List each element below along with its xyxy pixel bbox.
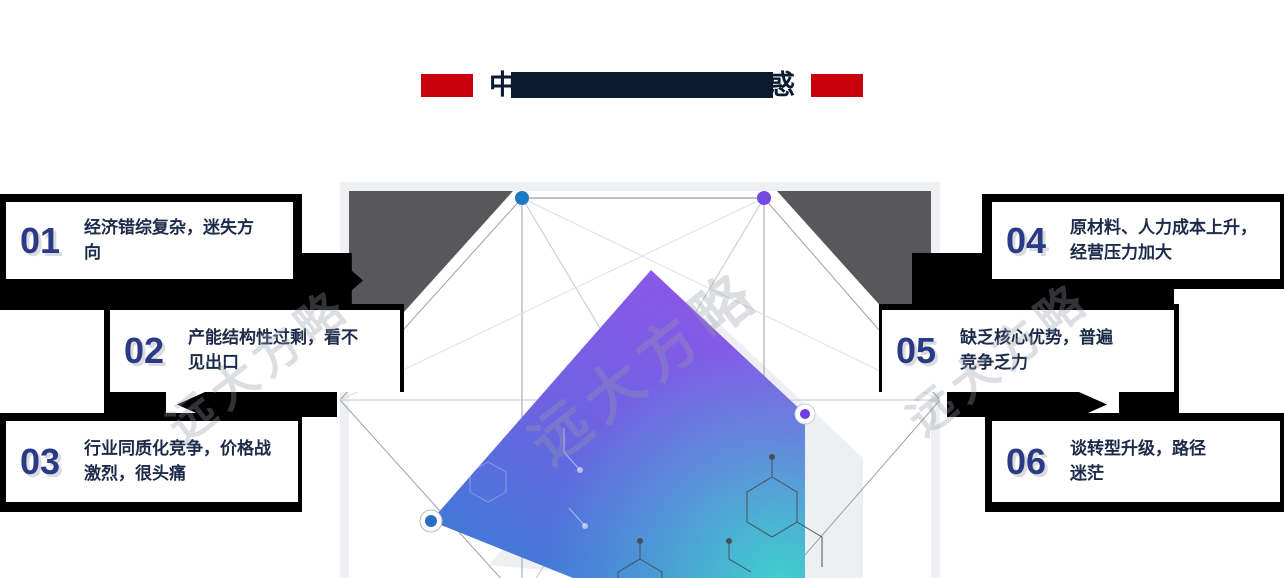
card-01-text: 经济错综复杂，迷失方向 [84, 216, 260, 265]
card-04-text: 原材料、人力成本上升，经营压力加大 [1070, 216, 1266, 265]
card-03: 03 行业同质化竞争，价格战激烈，很头痛 [6, 421, 298, 502]
blue-dot [515, 191, 529, 205]
card-04: 04 原材料、人力成本上升，经营压力加大 [992, 202, 1280, 279]
card-06: 06 谈转型升级，路径迷茫 [992, 421, 1280, 502]
card-03-text: 行业同质化竞争，价格战激烈，很头痛 [84, 437, 280, 486]
card-04-number: 04 [1006, 223, 1046, 259]
card-02-number: 02 [124, 333, 164, 369]
title-redacted-bar [511, 72, 773, 98]
title-accent-left [421, 74, 473, 97]
title-last-char: 惑 [768, 72, 795, 99]
card-01-number: 01 [20, 223, 60, 259]
purple-ring-dot [795, 404, 815, 424]
card-06-text: 谈转型升级，路径迷茫 [1070, 437, 1215, 486]
card-06-number: 06 [1006, 444, 1046, 480]
purple-dot [757, 191, 771, 205]
hexagon-radar-diagram [340, 182, 940, 578]
card-02-text: 产能结构性过剩，看不见出口 [188, 326, 364, 375]
card-05-text: 缺乏核心优势，普遍竞争乏力 [960, 326, 1120, 375]
card-05-number: 05 [896, 333, 936, 369]
blue-ring-dot [420, 510, 442, 532]
title-text-group: 中 惑 [489, 72, 795, 99]
page-title: 中 惑 [0, 70, 1284, 100]
card-02: 02 产能结构性过剩，看不见出口 [110, 310, 400, 392]
title-accent-right [811, 74, 863, 97]
card-05: 05 缺乏核心优势，普遍竞争乏力 [882, 310, 1174, 392]
card-03-number: 03 [20, 444, 60, 480]
card-01: 01 经济错综复杂，迷失方向 [6, 202, 293, 279]
